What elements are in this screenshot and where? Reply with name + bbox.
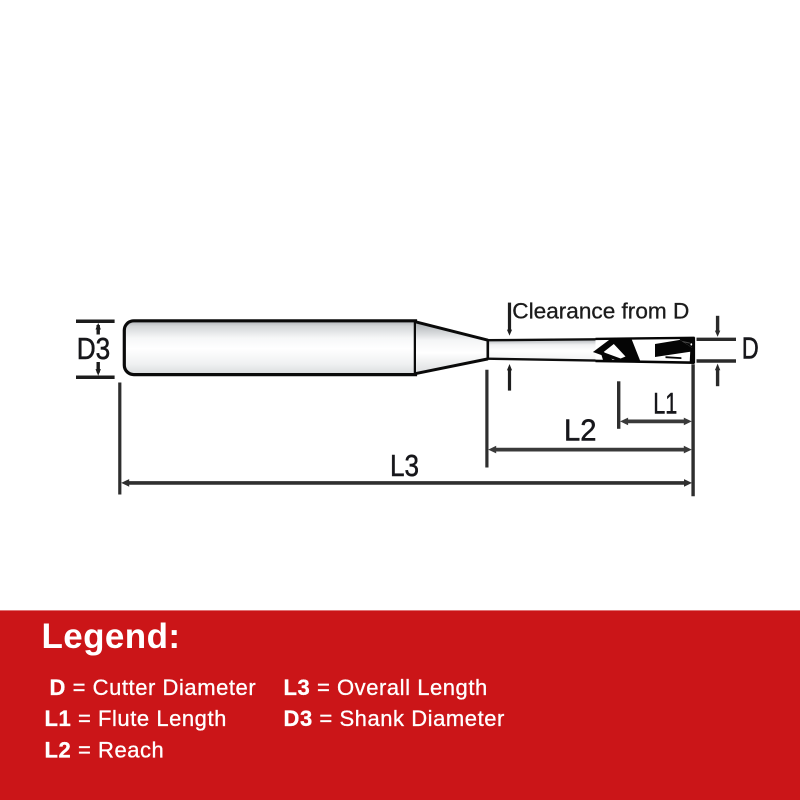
svg-text:L2 = Reach: L2 = Reach bbox=[45, 737, 165, 762]
svg-text:D = Cutter Diameter: D = Cutter Diameter bbox=[50, 675, 257, 700]
svg-text:D: D bbox=[742, 330, 759, 365]
svg-text:L1: L1 bbox=[653, 388, 677, 421]
svg-text:Clearance from D: Clearance from D bbox=[512, 299, 689, 324]
svg-text:D3 = Shank Diameter: D3 = Shank Diameter bbox=[284, 706, 505, 731]
svg-text:D3: D3 bbox=[77, 331, 111, 366]
svg-text:L3 = Overall Length: L3 = Overall Length bbox=[284, 675, 488, 700]
svg-text:L3: L3 bbox=[390, 449, 419, 483]
svg-text:Legend:: Legend: bbox=[42, 617, 181, 656]
svg-text:L2: L2 bbox=[564, 414, 597, 448]
svg-text:L1 = Flute Length: L1 = Flute Length bbox=[45, 706, 227, 731]
